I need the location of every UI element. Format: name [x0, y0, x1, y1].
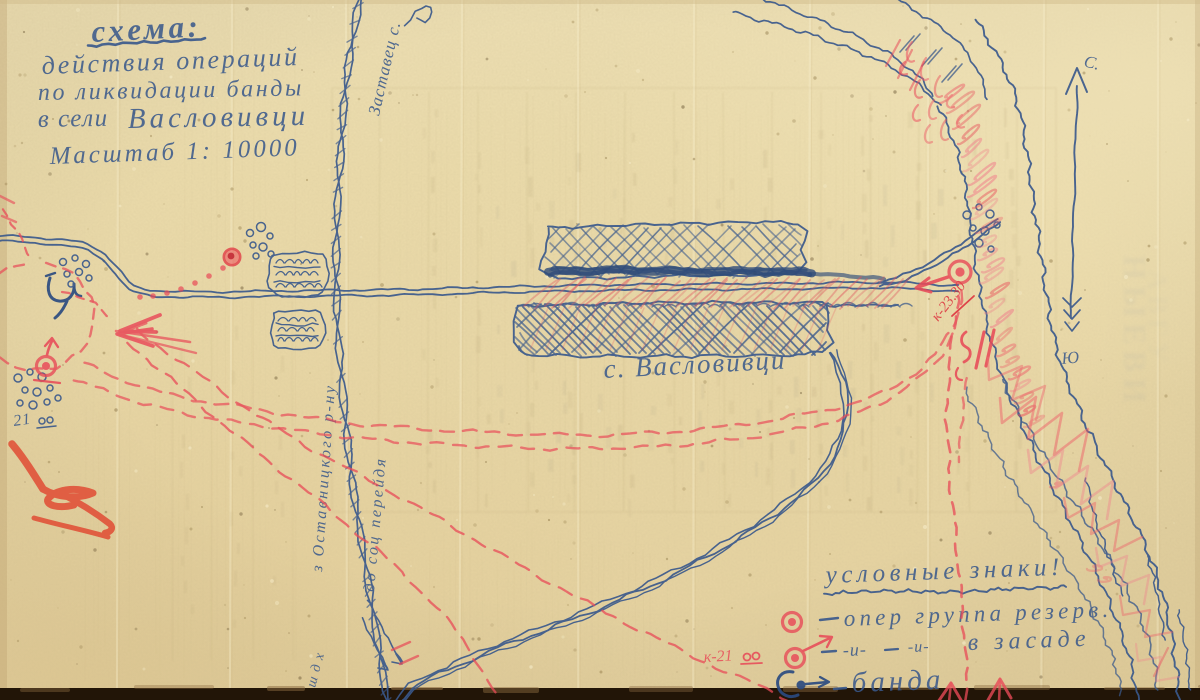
svg-text:Васловивци: Васловивци	[128, 100, 310, 135]
svg-text:-и-: -и-	[842, 639, 867, 660]
svg-text:к-21: к-21	[703, 648, 733, 666]
svg-text:в сели: в сели	[38, 105, 109, 133]
svg-text:-и-: -и-	[908, 638, 930, 656]
svg-text:Ю: Ю	[1060, 347, 1081, 368]
svg-text:АВГУ: АВГУ	[1141, 270, 1172, 367]
svg-text:21: 21	[12, 411, 32, 430]
svg-text:в засаде: в засаде	[967, 626, 1091, 656]
svg-text:банда: банда	[851, 664, 945, 699]
